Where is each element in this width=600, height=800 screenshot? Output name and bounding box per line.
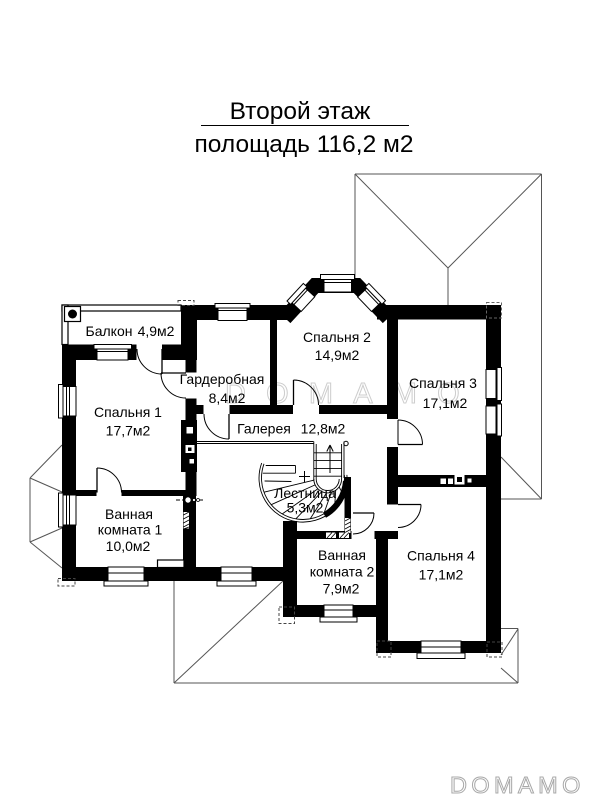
svg-text:Балкон: Балкон — [86, 323, 133, 339]
svg-text:Ванная: Ванная — [105, 506, 153, 522]
svg-text:DOMAMO: DOMAMO — [450, 772, 585, 798]
svg-text:Ванная: Ванная — [318, 547, 366, 563]
svg-text:комната 1: комната 1 — [98, 522, 163, 538]
svg-text:Спальня 4: Спальня 4 — [407, 548, 475, 564]
svg-text:Второй этаж: Второй этаж — [230, 98, 371, 125]
svg-text:5,3м2: 5,3м2 — [287, 500, 324, 516]
svg-text:4,9м2: 4,9м2 — [138, 323, 175, 339]
svg-text:Спальня 1: Спальня 1 — [94, 404, 162, 420]
svg-text:7,9м2: 7,9м2 — [323, 581, 360, 597]
svg-text:комната 2: комната 2 — [310, 564, 375, 580]
svg-text:17,1м2: 17,1м2 — [419, 567, 464, 583]
svg-text:Спальня 3: Спальня 3 — [409, 375, 477, 391]
svg-text:12,8м2: 12,8м2 — [301, 421, 346, 437]
svg-text:17,1м2: 17,1м2 — [423, 395, 468, 411]
svg-text:17,7м2: 17,7м2 — [106, 423, 151, 439]
svg-text:10,0м2: 10,0м2 — [106, 538, 151, 554]
svg-text:14,9м2: 14,9м2 — [315, 347, 360, 363]
svg-text:8,4м2: 8,4м2 — [209, 390, 246, 406]
svg-text:полощадь 116,2 м2: полощадь 116,2 м2 — [195, 131, 414, 158]
svg-text:Гардеробная: Гардеробная — [180, 371, 265, 387]
svg-text:Спальня 2: Спальня 2 — [303, 329, 371, 345]
svg-text:Галерея: Галерея — [237, 421, 291, 437]
